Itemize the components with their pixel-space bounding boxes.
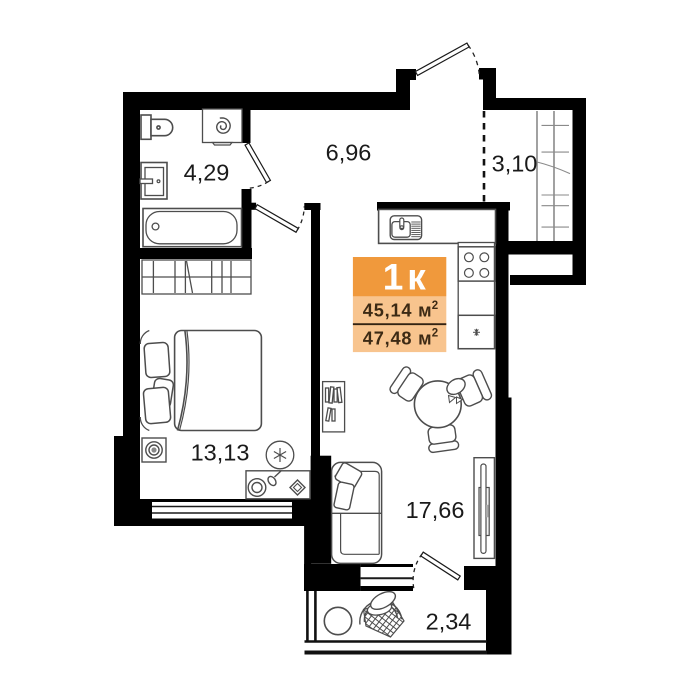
svg-text:2: 2 — [432, 328, 438, 340]
svg-text:47,48 м: 47,48 м — [363, 328, 433, 348]
svg-text:1к: 1к — [383, 257, 430, 298]
svg-text:2,34: 2,34 — [426, 609, 472, 635]
svg-text:6,96: 6,96 — [326, 140, 372, 166]
svg-text:45,14 м: 45,14 м — [363, 301, 433, 321]
svg-text:17,66: 17,66 — [406, 497, 465, 523]
svg-text:4,29: 4,29 — [184, 160, 230, 186]
svg-text:13,13: 13,13 — [191, 439, 250, 465]
svg-text:2: 2 — [432, 300, 438, 312]
svg-text:3,10: 3,10 — [492, 150, 538, 176]
